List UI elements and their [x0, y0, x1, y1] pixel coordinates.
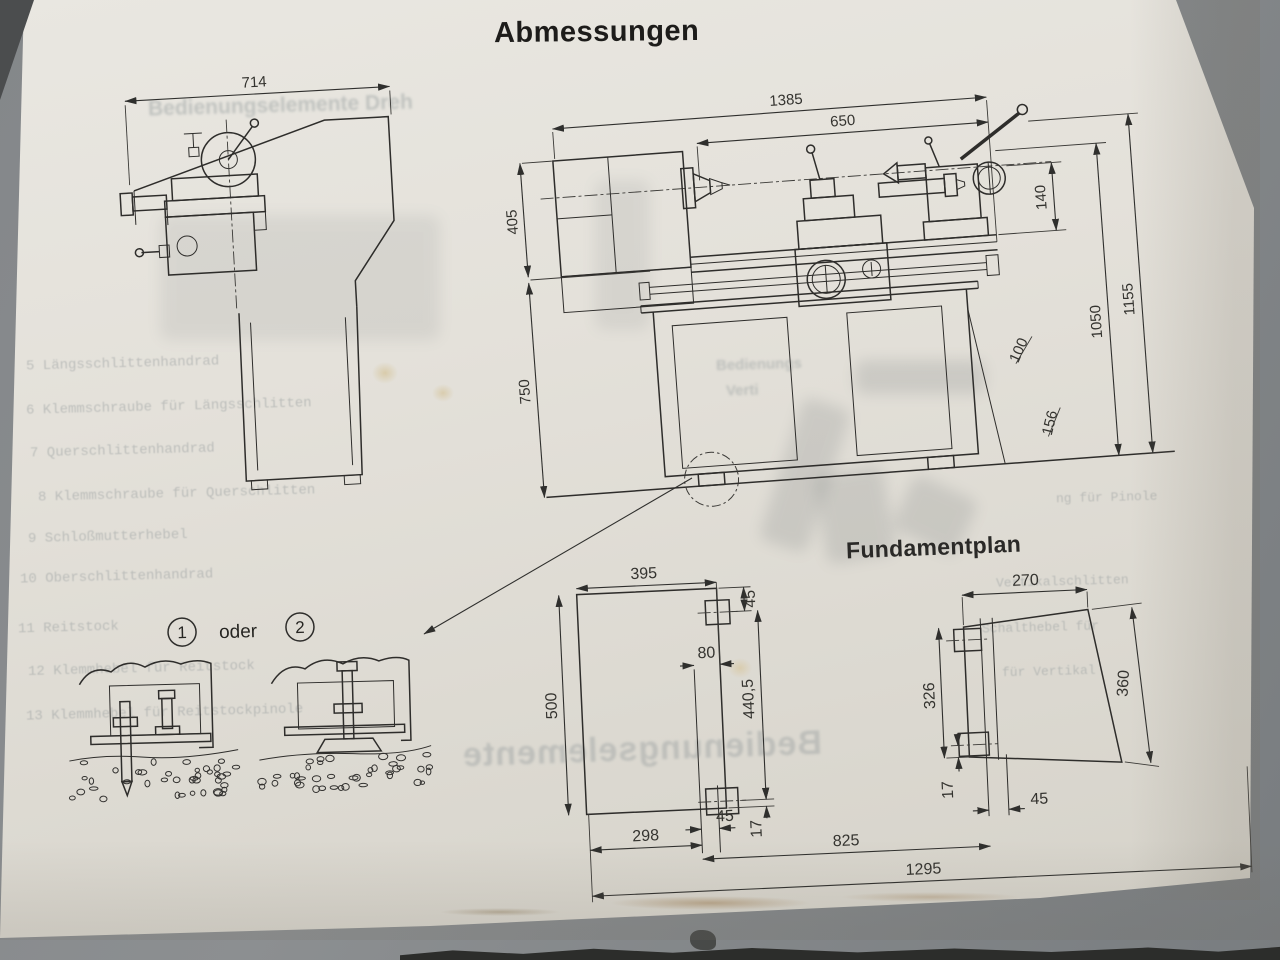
- dim-1295: 1295: [905, 860, 941, 879]
- dim-825: 825: [832, 832, 860, 850]
- dim-500: 500: [543, 692, 561, 720]
- dim-440-5: 440,5: [740, 678, 759, 719]
- option-2-number: 2: [295, 618, 305, 637]
- photo-of-manual-page: Bedienungselemente Dreh 5 Längsschlitten…: [0, 0, 1280, 960]
- dim-270: 270: [1012, 572, 1040, 590]
- gravel-texture: [68, 757, 240, 803]
- dim-45-bottom-right: 45: [1030, 790, 1049, 808]
- dim-360: 360: [1114, 670, 1133, 698]
- oder-label: oder: [219, 621, 258, 643]
- dim-80: 80: [697, 644, 716, 662]
- dim-45-top: 45: [742, 589, 760, 608]
- dim-298: 298: [632, 827, 660, 845]
- dim-45-bottom-left: 45: [716, 808, 735, 826]
- gravel-texture: [257, 752, 433, 794]
- dim-17-right: 17: [940, 781, 958, 800]
- dim-17-left: 17: [748, 819, 766, 838]
- dim-395: 395: [630, 565, 658, 583]
- foundation-plan-drawing: 395 500 45 80 440,5 17 298 45 825 1295: [537, 536, 1267, 918]
- dim-326: 326: [921, 682, 939, 710]
- option-1-number: 1: [177, 623, 187, 642]
- mounting-detail-sketches: 1 oder 2: [59, 593, 464, 818]
